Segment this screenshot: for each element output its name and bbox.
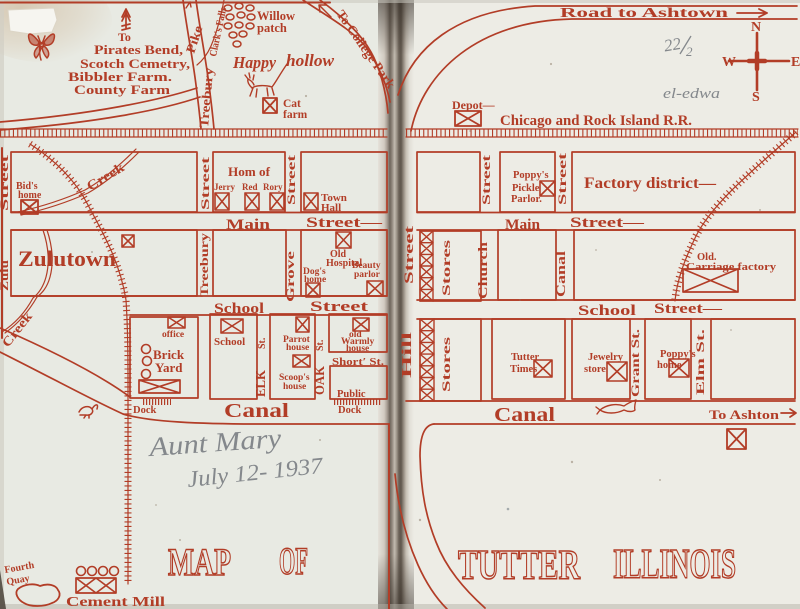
svg-text:Short′ St.: Short′ St. <box>332 356 384 368</box>
svg-text:St.: St. <box>257 337 268 349</box>
svg-text:office: office <box>162 330 184 340</box>
svg-text:Jerry: Jerry <box>214 182 235 192</box>
svg-text:parlor: parlor <box>354 270 381 280</box>
svg-text:Tutter: Tutter <box>511 352 540 363</box>
svg-text:Treebury: Treebury <box>197 233 211 297</box>
svg-text:home: home <box>657 360 682 371</box>
svg-text:house: house <box>283 382 306 392</box>
svg-text:Canal: Canal <box>494 404 556 426</box>
svg-text:Happy: Happy <box>232 53 276 72</box>
svg-text:hollow: hollow <box>286 51 335 70</box>
svg-text:Red: Red <box>242 182 258 192</box>
svg-text:home: home <box>18 190 42 201</box>
svg-text:Carriage factory: Carriage factory <box>686 262 777 273</box>
svg-text:County Farm: County Farm <box>74 82 170 97</box>
svg-text:N: N <box>751 20 761 35</box>
svg-text:OF: OF <box>279 540 308 583</box>
svg-text:Street: Street <box>401 225 416 284</box>
svg-text:store: store <box>584 364 606 375</box>
svg-text:Main: Main <box>505 217 541 233</box>
svg-text:ELK: ELK <box>254 370 269 397</box>
svg-text:22: 22 <box>662 34 682 56</box>
svg-text:Dock: Dock <box>338 405 361 416</box>
svg-text:house: house <box>346 344 369 354</box>
svg-text:S: S <box>752 90 760 105</box>
svg-text:Stores: Stores <box>439 239 453 296</box>
svg-text:Street—: Street— <box>570 215 645 231</box>
svg-text:Street: Street <box>284 155 298 205</box>
svg-text:Chicago and Rock Island R.R.: Chicago and Rock Island R.R. <box>500 113 692 129</box>
svg-text:Stores: Stores <box>439 336 453 392</box>
svg-text:School: School <box>578 303 636 319</box>
svg-text:Grant St.: Grant St. <box>628 329 642 397</box>
svg-text:Rory: Rory <box>263 182 283 192</box>
svg-text:Main: Main <box>226 217 271 233</box>
svg-text:home: home <box>304 275 326 285</box>
svg-text:School: School <box>214 301 264 317</box>
svg-text:Elm St.: Elm St. <box>693 329 707 395</box>
svg-text:farm: farm <box>283 109 308 121</box>
svg-text:Street: Street <box>0 155 11 211</box>
svg-text:Poppy's: Poppy's <box>660 349 696 360</box>
svg-text:patch: patch <box>257 21 287 35</box>
svg-text:MAP: MAP <box>168 541 231 584</box>
svg-text:Hill: Hill <box>400 332 415 378</box>
svg-text:Canal: Canal <box>553 250 568 297</box>
svg-text:Street—: Street— <box>654 301 723 317</box>
svg-text:St.: St. <box>315 339 326 351</box>
svg-text:Jewelry: Jewelry <box>588 352 624 363</box>
svg-text:Grove: Grove <box>283 250 297 302</box>
svg-text:Public: Public <box>337 389 366 400</box>
svg-text:Road to Ashtown: Road to Ashtown <box>560 6 728 21</box>
svg-text:Street: Street <box>555 153 569 205</box>
svg-text:house: house <box>286 343 309 353</box>
svg-text:Pickle: Pickle <box>512 183 540 194</box>
svg-text:ILLINOIS: ILLINOIS <box>613 542 736 588</box>
svg-text:2: 2 <box>686 44 693 59</box>
svg-text:Street: Street <box>198 157 212 210</box>
svg-text:Church: Church <box>475 241 490 299</box>
svg-text:Cement Mill: Cement Mill <box>66 595 165 609</box>
svg-text:Depot—: Depot— <box>452 98 496 112</box>
svg-text:Hom of: Hom of <box>228 165 271 179</box>
svg-text:Street: Street <box>310 299 368 315</box>
svg-text:Street: Street <box>479 155 493 205</box>
svg-text:Zulutown: Zulutown <box>18 246 116 271</box>
svg-text:W: W <box>722 55 736 70</box>
svg-text:Factory district—: Factory district— <box>584 175 717 192</box>
svg-text:Times: Times <box>510 364 537 375</box>
svg-text:Street—: Street— <box>306 215 383 231</box>
svg-text:el-edwa: el-edwa <box>663 86 720 102</box>
svg-text:To Ashton: To Ashton <box>709 407 780 422</box>
svg-text:Poppy's: Poppy's <box>513 170 549 181</box>
svg-text:Hall: Hall <box>321 202 341 214</box>
svg-text:TUTTER: TUTTER <box>458 543 580 589</box>
svg-text:Parlor.: Parlor. <box>511 194 542 205</box>
svg-text:School: School <box>214 336 245 348</box>
svg-text:Dock: Dock <box>133 405 156 416</box>
svg-text:Yard: Yard <box>155 360 183 375</box>
svg-text:OAK: OAK <box>313 366 328 395</box>
svg-text:Canal: Canal <box>224 400 290 422</box>
svg-text:E: E <box>791 55 800 70</box>
svg-text:Zulu: Zulu <box>0 260 11 291</box>
svg-text:Pirates Bend,: Pirates Bend, <box>94 42 183 57</box>
